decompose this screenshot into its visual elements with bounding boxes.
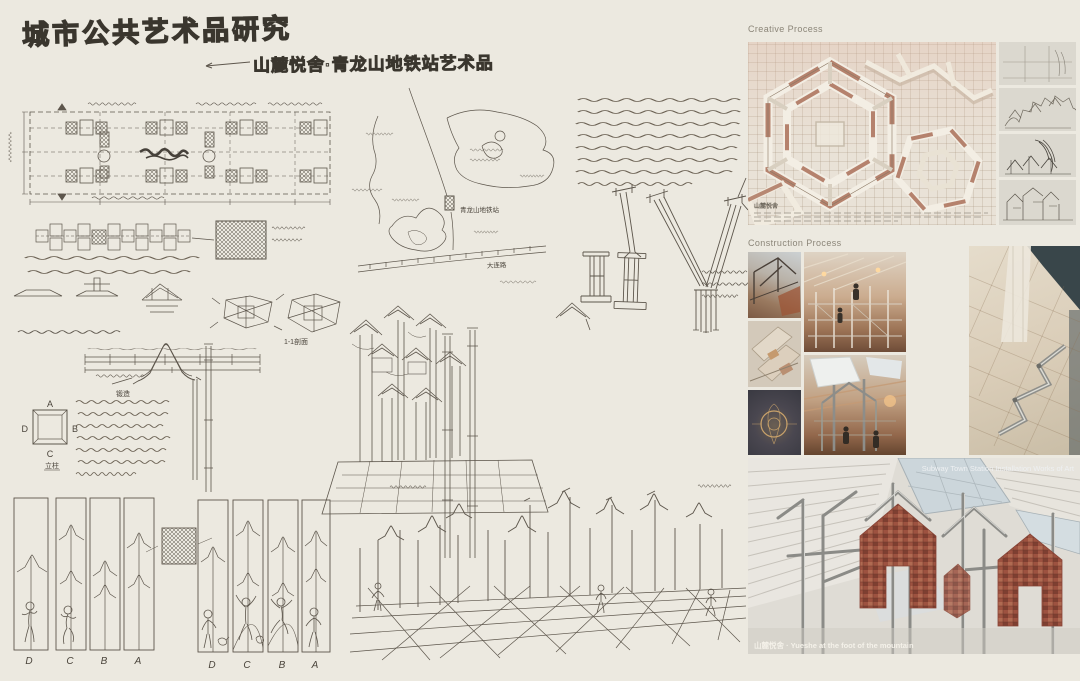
creative-process-label: Creative Process [748,24,823,34]
creative-caption: 山麓悦舍 [754,202,779,210]
handwritten-note-main [576,99,740,186]
final-photo-caption: 山麓悦舍 · Yueshe at the foot of the mountai… [754,640,914,650]
svg-text:A: A [134,656,142,667]
handwritten-note-line [18,331,120,334]
svg-text:B: B [101,656,108,667]
forge-label: 锻造 [116,389,130,398]
column-caption: 立柱 [45,461,59,470]
pattern-chip [146,528,212,564]
form-evolution-sketches [14,278,340,332]
construction-photo-skylight [748,252,801,318]
panel-set-2-letters: D C B A [208,660,318,671]
dimension-bar [85,348,260,373]
construction-process-label: Construction Process [748,238,842,248]
panel-set-2 [198,500,330,652]
svg-text:C: C [66,656,74,667]
creative-thumbnails [999,42,1076,225]
plan-sketch [9,103,330,205]
tree-axon-sketch [322,306,731,514]
elevation-sketch [350,488,746,660]
construction-photo-parts [748,321,801,387]
construction-photo-pattern-floor [969,246,1080,455]
column-label-a: A [47,399,53,409]
construction-photo-scaffold-2 [804,355,906,455]
creative-model-photo: 山麓悦舍 [748,42,996,225]
panel-set-1 [14,498,154,650]
tall-column-details [204,328,478,558]
frame-detail-sketches [556,252,648,330]
presentation-board: 城市公共艺术品研究 山麓悦舍·青龙山地铁站艺术品 [0,0,1080,681]
map-road-label: 大连路 [487,260,507,270]
column-section-diagram [33,410,67,470]
branching-structure-sketch [612,178,748,333]
map-station-label: 青龙山地铁站 [460,205,500,214]
column-label-c: C [47,449,54,459]
tile-pattern-sketch [36,221,305,259]
final-photo-label: Subway Town Station Installation Works o… [922,464,1075,473]
handwritten-note-structure [76,401,170,476]
sketch-canvas: 1-1剖面 锻造 [0,0,748,681]
svg-text:A: A [311,660,319,671]
column-label-d: D [22,424,29,434]
svg-text:C: C [243,660,251,671]
construction-photo-floor [748,390,801,455]
svg-text:B: B [279,660,286,671]
section-label: 1-1剖面 [284,337,308,346]
site-map-sketch [352,88,554,283]
final-installation-photo: Subway Town Station Installation Works o… [748,458,1080,654]
panel-set-1-letters: D C B A [25,656,141,667]
roof-profile-sketch [96,344,201,481]
handwritten-note-concept [25,257,199,274]
construction-photo-scaffold-1 [804,252,906,352]
svg-text:D: D [25,656,32,667]
svg-text:D: D [208,660,215,671]
